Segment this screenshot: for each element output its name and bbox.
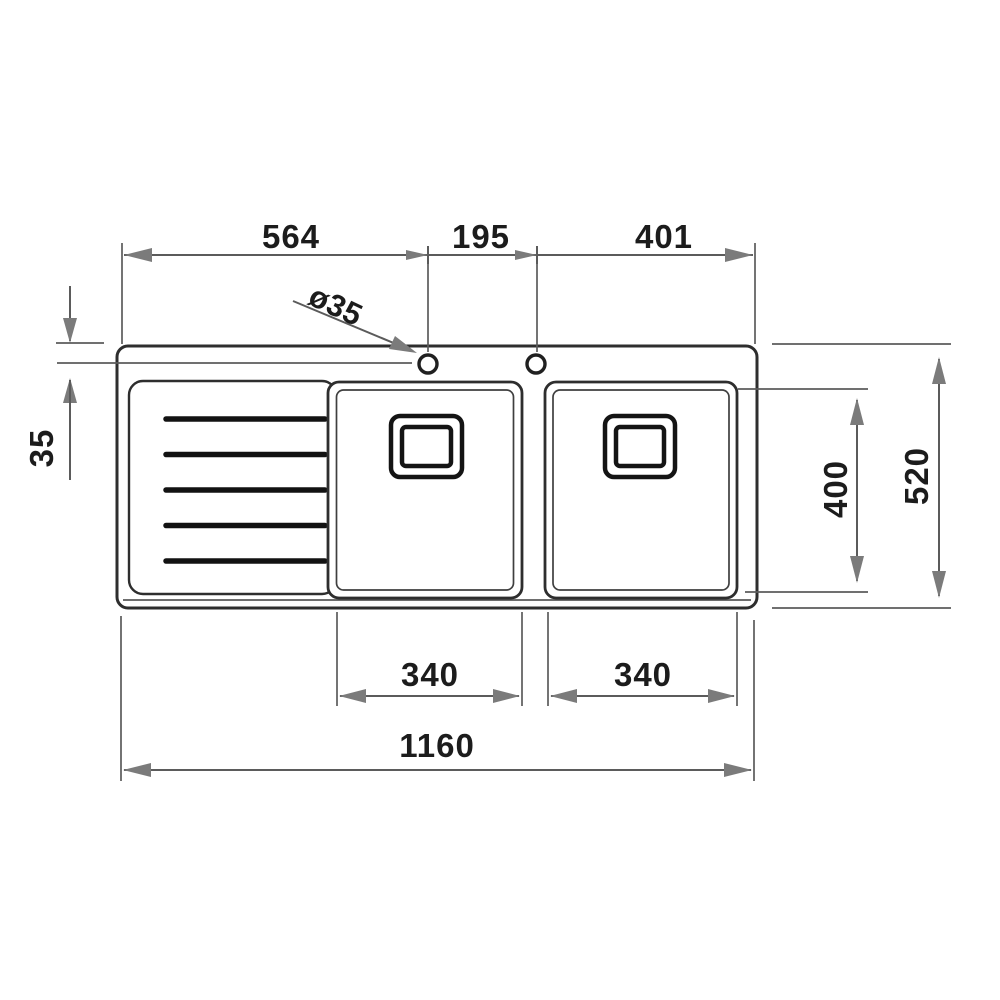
sink-plan: [117, 346, 757, 608]
dim-right-bowl-width: 340: [548, 612, 737, 706]
dim-left-bowl-width: 340: [337, 612, 522, 706]
sink-dimension-drawing: 564 195 401 35 ø35 400 520: [0, 0, 1000, 1000]
arrowhead-left: [550, 689, 577, 703]
arrowhead-left: [123, 763, 151, 777]
right-drain-inner: [616, 427, 664, 466]
dim-label-564: 564: [262, 218, 320, 255]
arrowhead-down: [850, 556, 864, 583]
dim-label-1160: 1160: [399, 727, 475, 764]
arrowhead-right: [724, 763, 752, 777]
arrowhead-up: [850, 398, 864, 425]
arrowhead-up: [932, 357, 946, 384]
arrowhead-right: [708, 689, 735, 703]
tap-hole-left: [419, 355, 437, 373]
dim-label-340-right: 340: [614, 656, 672, 693]
left-drain-inner: [402, 427, 451, 466]
dim-label-35: 35: [23, 429, 60, 468]
dim-label-195: 195: [452, 218, 510, 255]
left-bowl: [328, 382, 522, 598]
arrowhead-down: [932, 571, 946, 598]
technical-drawing-canvas: 564 195 401 35 ø35 400 520: [0, 0, 1000, 1000]
dim-label-400: 400: [817, 460, 854, 518]
tap-hole-right: [527, 355, 545, 373]
arrowhead-right: [725, 248, 753, 262]
arrowhead-small: [515, 250, 537, 260]
dim-overall-depth: 520: [772, 344, 951, 608]
arrowhead-down: [63, 318, 77, 343]
arrowhead-right: [493, 689, 520, 703]
leader-hole-diameter: ø35: [293, 278, 417, 353]
dim-label-diameter-35: ø35: [304, 278, 369, 333]
dim-label-401: 401: [635, 218, 693, 255]
arrowhead-left: [124, 248, 152, 262]
arrowhead-small: [406, 250, 428, 260]
arrowhead-left: [339, 689, 366, 703]
dim-label-340-left: 340: [401, 656, 459, 693]
dim-overall-width: 1160: [121, 616, 754, 781]
dim-label-520: 520: [898, 447, 935, 505]
right-bowl: [545, 382, 737, 598]
dim-top-chain: 564 195 401: [122, 218, 755, 352]
